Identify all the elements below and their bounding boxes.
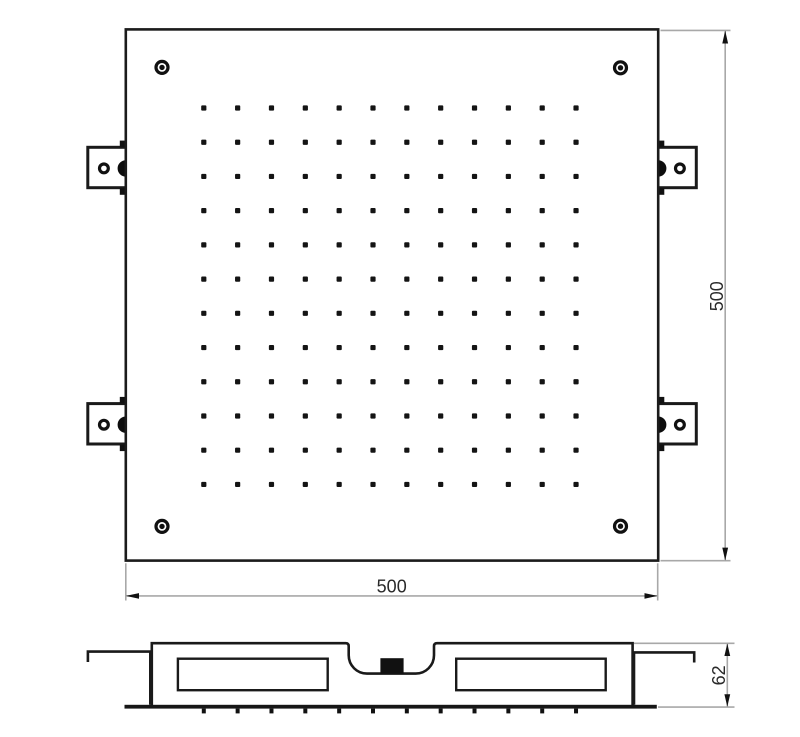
svg-text:500: 500: [707, 281, 727, 311]
svg-text:500: 500: [377, 577, 407, 597]
svg-text:62: 62: [709, 665, 729, 685]
